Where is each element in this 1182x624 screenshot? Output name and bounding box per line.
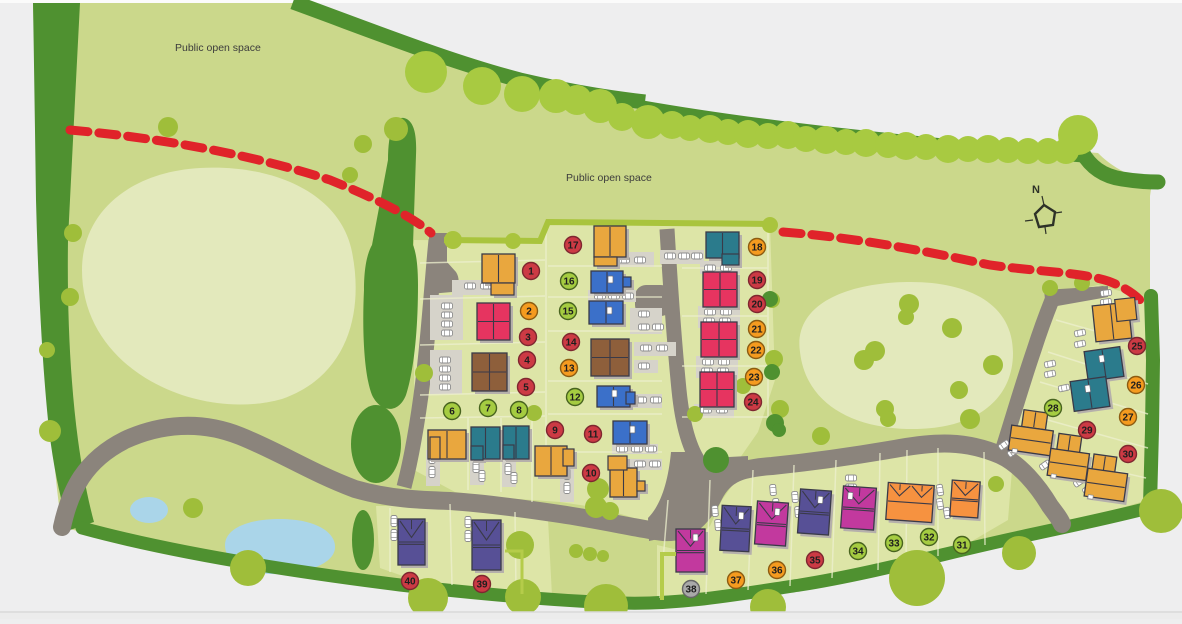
- svg-text:Public open space: Public open space: [566, 172, 652, 184]
- svg-text:5: 5: [523, 383, 529, 394]
- svg-text:39: 39: [476, 580, 488, 591]
- svg-text:16: 16: [563, 277, 575, 288]
- svg-text:22: 22: [750, 346, 762, 357]
- svg-text:6: 6: [449, 407, 455, 418]
- svg-text:31: 31: [956, 541, 968, 552]
- svg-text:3: 3: [525, 333, 531, 344]
- svg-text:20: 20: [751, 300, 763, 311]
- svg-text:32: 32: [923, 533, 935, 544]
- svg-text:2: 2: [526, 307, 532, 318]
- svg-text:27: 27: [1122, 413, 1134, 424]
- svg-text:33: 33: [888, 539, 900, 550]
- svg-text:37: 37: [730, 576, 742, 587]
- svg-text:7: 7: [485, 404, 491, 415]
- svg-text:25: 25: [1131, 342, 1143, 353]
- svg-text:28: 28: [1047, 404, 1059, 415]
- svg-text:30: 30: [1122, 450, 1134, 461]
- svg-text:29: 29: [1081, 426, 1093, 437]
- svg-text:23: 23: [748, 373, 760, 384]
- svg-text:Public open space: Public open space: [175, 42, 261, 54]
- svg-text:1: 1: [528, 267, 534, 278]
- svg-text:19: 19: [751, 276, 763, 287]
- svg-text:34: 34: [852, 547, 864, 558]
- svg-text:8: 8: [516, 406, 522, 417]
- svg-text:40: 40: [404, 577, 416, 588]
- svg-text:N: N: [1032, 184, 1040, 196]
- svg-text:11: 11: [588, 430, 599, 441]
- svg-text:17: 17: [567, 241, 579, 252]
- svg-text:10: 10: [585, 469, 597, 480]
- svg-text:14: 14: [565, 338, 577, 349]
- svg-text:13: 13: [563, 364, 575, 375]
- svg-text:4: 4: [524, 356, 530, 367]
- svg-text:18: 18: [751, 243, 763, 254]
- svg-text:12: 12: [569, 393, 581, 404]
- svg-text:21: 21: [751, 325, 763, 336]
- svg-text:35: 35: [809, 556, 821, 567]
- svg-text:36: 36: [771, 566, 783, 577]
- svg-text:38: 38: [685, 585, 697, 596]
- svg-text:15: 15: [562, 307, 574, 318]
- svg-text:9: 9: [552, 426, 558, 437]
- svg-text:26: 26: [1130, 381, 1142, 392]
- svg-text:24: 24: [747, 398, 759, 409]
